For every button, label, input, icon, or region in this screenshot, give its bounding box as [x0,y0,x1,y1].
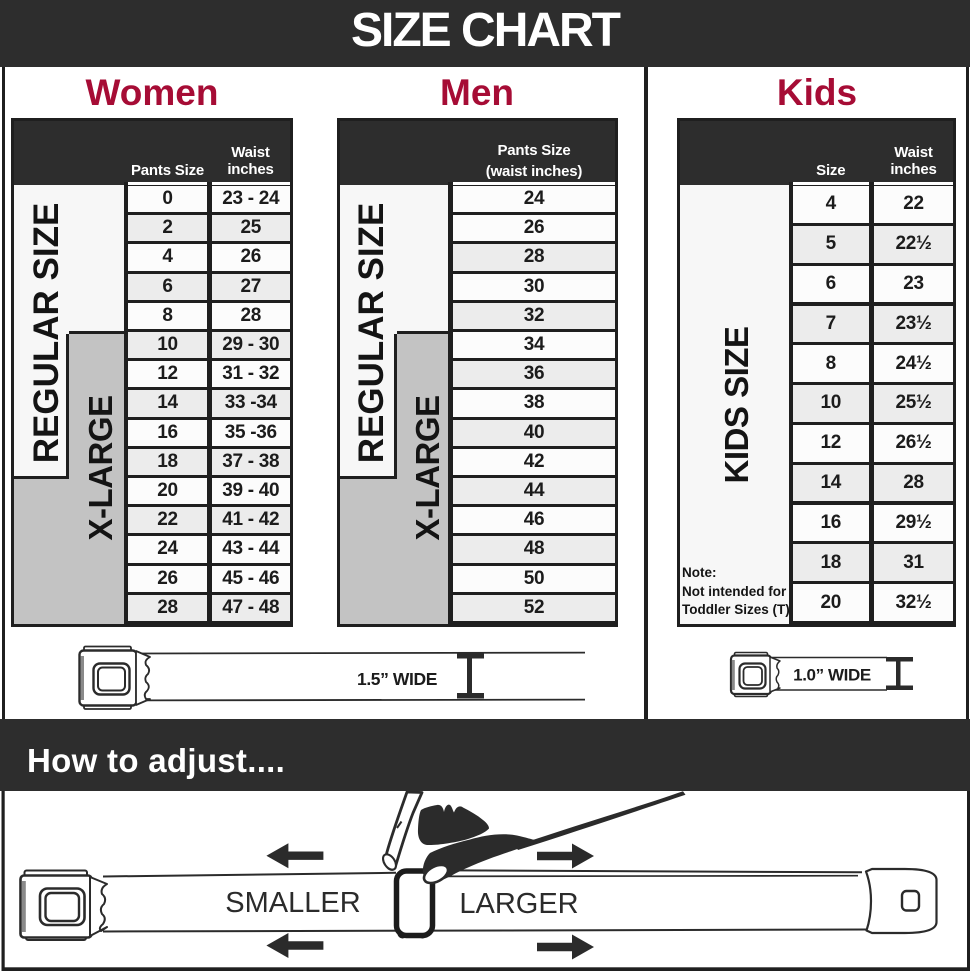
svg-text:SMALLER: SMALLER [225,887,360,919]
svg-text:LARGER: LARGER [459,888,578,920]
svg-text:1.5” WIDE: 1.5” WIDE [357,669,437,689]
svg-text:1.0” WIDE: 1.0” WIDE [793,666,871,685]
